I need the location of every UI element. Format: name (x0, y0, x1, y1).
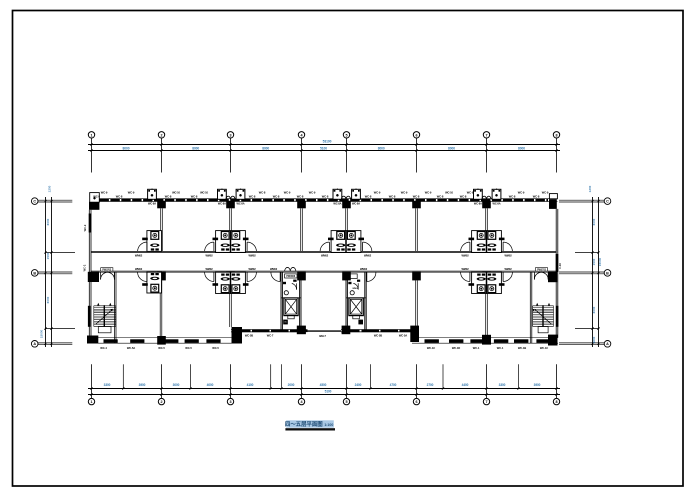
svg-text:WC-8: WC-8 (509, 195, 516, 199)
svg-text:3: 3 (229, 400, 231, 404)
svg-text:3: 3 (229, 133, 231, 137)
svg-text:WC-9: WC-9 (374, 191, 381, 195)
svg-text:WC-9: WC-9 (401, 191, 408, 195)
svg-text:2: 2 (160, 133, 162, 137)
svg-text:WC-8A: WC-8A (236, 202, 244, 206)
svg-text:1500: 1500 (592, 258, 596, 265)
svg-text:2000: 2000 (288, 383, 295, 387)
svg-text:15000: 15000 (40, 329, 44, 338)
svg-text:WM02: WM02 (135, 253, 143, 257)
svg-text:PW0703: PW0703 (102, 270, 112, 272)
svg-text:5100: 5100 (320, 146, 327, 150)
svg-text:8000: 8000 (192, 146, 199, 150)
svg-text:8000: 8000 (518, 146, 525, 150)
svg-text:WM02: WM02 (461, 267, 469, 271)
svg-text:1: 1 (90, 133, 92, 137)
svg-text:WC-1: WC-1 (473, 346, 480, 350)
svg-text:WM02: WM02 (360, 267, 368, 271)
svg-text:8000: 8000 (378, 146, 385, 150)
svg-text:8000: 8000 (123, 146, 130, 150)
svg-text:WC-9: WC-9 (518, 191, 525, 195)
svg-text:WC-1: WC-1 (497, 346, 504, 350)
svg-text:1:100: 1:100 (324, 423, 333, 427)
svg-text:6000: 6000 (592, 218, 596, 225)
svg-text:8: 8 (555, 400, 557, 404)
svg-text:WM02: WM02 (205, 267, 213, 271)
svg-text:4500: 4500 (320, 383, 327, 387)
svg-text:WC-8A: WC-8A (218, 202, 226, 206)
svg-text:3900: 3900 (139, 383, 146, 387)
svg-text:WC-9: WC-9 (467, 191, 474, 195)
svg-text:四～五层平面图: 四～五层平面图 (285, 420, 323, 428)
svg-text:C: C (33, 200, 36, 204)
svg-text:7: 7 (485, 400, 487, 404)
svg-text:4000: 4000 (207, 383, 214, 387)
svg-text:WC-8: WC-8 (365, 195, 372, 199)
svg-text:15000: 15000 (598, 257, 602, 266)
svg-text:WM02: WM02 (248, 253, 256, 257)
svg-text:WC-8: WC-8 (533, 195, 540, 199)
svg-text:WM02: WM02 (461, 253, 469, 257)
svg-text:WM02: WM02 (205, 253, 213, 257)
svg-text:WC-5A: WC-5A (127, 346, 135, 350)
svg-text:BM-7: BM-7 (319, 334, 326, 338)
svg-text:PW0606: PW0606 (286, 276, 296, 278)
svg-text:WC-10: WC-10 (172, 191, 180, 195)
svg-text:WC-5: WC-5 (158, 346, 165, 350)
svg-text:WC-1D: WC-1D (452, 346, 460, 350)
svg-text:WC-8: WC-8 (322, 195, 329, 199)
svg-text:4700: 4700 (390, 383, 397, 387)
svg-text:6: 6 (415, 400, 417, 404)
svg-text:WC-5B: WC-5B (374, 334, 382, 338)
svg-text:3300: 3300 (499, 383, 506, 387)
svg-text:1: 1 (90, 400, 92, 404)
svg-text:A: A (606, 342, 609, 346)
svg-text:5: 5 (345, 400, 347, 404)
svg-text:WC-9: WC-9 (309, 191, 316, 195)
svg-text:WC-8: WC-8 (259, 191, 266, 195)
svg-text:WC-8: WC-8 (191, 195, 198, 199)
svg-text:8000: 8000 (448, 146, 455, 150)
svg-text:C-16: C-16 (558, 263, 562, 269)
svg-text:WC-8: WC-8 (93, 195, 100, 199)
svg-text:3300: 3300 (104, 383, 111, 387)
svg-text:WC-8A: WC-8A (333, 202, 341, 206)
svg-text:WC-9: WC-9 (284, 191, 291, 195)
svg-text:WC-8A: WC-8A (352, 202, 360, 206)
svg-text:WM02: WM02 (321, 253, 329, 257)
svg-text:WC-10: WC-10 (445, 191, 453, 195)
svg-text:4400: 4400 (462, 383, 469, 387)
svg-text:B: B (33, 271, 36, 275)
svg-text:WC-10: WC-10 (200, 191, 208, 195)
svg-text:3900: 3900 (534, 383, 541, 387)
svg-text:WC-8: WC-8 (249, 195, 256, 199)
svg-text:WC-8A: WC-8A (474, 202, 482, 206)
svg-text:53100: 53100 (323, 140, 332, 144)
svg-text:WM02: WM02 (364, 253, 372, 257)
svg-text:WC-5: WC-5 (212, 346, 219, 350)
svg-text:WM02: WM02 (504, 267, 512, 271)
svg-text:WC-4: WC-4 (100, 346, 107, 350)
svg-text:2: 2 (160, 400, 162, 404)
svg-text:WM02: WM02 (270, 267, 278, 271)
svg-text:WM02: WM02 (248, 267, 256, 271)
svg-text:2400: 2400 (355, 383, 362, 387)
svg-text:WC-2: WC-2 (83, 264, 87, 271)
svg-text:5: 5 (345, 133, 347, 137)
svg-text:WC-8: WC-8 (460, 195, 467, 199)
svg-text:WC-1C: WC-1C (540, 346, 548, 350)
svg-text:WC-1C: WC-1C (427, 346, 435, 350)
svg-text:3600: 3600 (592, 336, 596, 343)
svg-text:8: 8 (555, 133, 557, 137)
svg-text:WC-5: WC-5 (185, 346, 192, 350)
svg-text:WC-8: WC-8 (273, 195, 280, 199)
svg-text:WM02: WM02 (135, 267, 143, 271)
svg-text:WC-9: WC-9 (101, 191, 108, 195)
svg-text:4100: 4100 (247, 383, 254, 387)
svg-text:WC-9: WC-9 (128, 191, 135, 195)
svg-text:B: B (606, 271, 609, 275)
svg-text:WC-5B: WC-5B (245, 334, 253, 338)
svg-text:WC-5A: WC-5A (399, 334, 407, 338)
svg-text:WC-9: WC-9 (425, 191, 432, 195)
svg-text:WC-8: WC-8 (165, 195, 172, 199)
svg-text:6000: 6000 (46, 218, 50, 225)
svg-text:WC-9: WC-9 (542, 191, 549, 195)
svg-text:5100: 5100 (325, 390, 332, 394)
svg-text:1200: 1200 (588, 185, 592, 192)
svg-text:WM02: WM02 (352, 288, 359, 290)
svg-text:WC-7: WC-7 (267, 334, 274, 338)
svg-text:WC-1B: WC-1B (518, 346, 526, 350)
svg-text:3000: 3000 (173, 383, 180, 387)
svg-text:C: C (606, 200, 609, 204)
svg-text:WC-2: WC-2 (83, 224, 87, 231)
svg-text:WC-8A: WC-8A (148, 202, 156, 206)
svg-text:2700: 2700 (427, 383, 434, 387)
svg-text:6000: 6000 (46, 296, 50, 303)
svg-text:8000: 8000 (262, 146, 269, 150)
svg-text:WC-8: WC-8 (413, 195, 420, 199)
svg-text:WC-8: WC-8 (437, 195, 444, 199)
svg-text:PW0703: PW0703 (537, 270, 547, 272)
svg-text:1200: 1200 (47, 185, 51, 192)
svg-text:WC-8: WC-8 (116, 195, 123, 199)
svg-text:1500: 1500 (46, 252, 50, 259)
svg-text:WC-8A: WC-8A (492, 202, 500, 206)
svg-text:6000: 6000 (592, 306, 596, 313)
svg-text:6: 6 (415, 133, 417, 137)
svg-text:7: 7 (485, 133, 487, 137)
svg-text:WC-8: WC-8 (389, 195, 396, 199)
svg-text:WM02: WM02 (504, 253, 512, 257)
svg-text:WC-8: WC-8 (297, 195, 304, 199)
svg-text:A: A (33, 342, 36, 346)
